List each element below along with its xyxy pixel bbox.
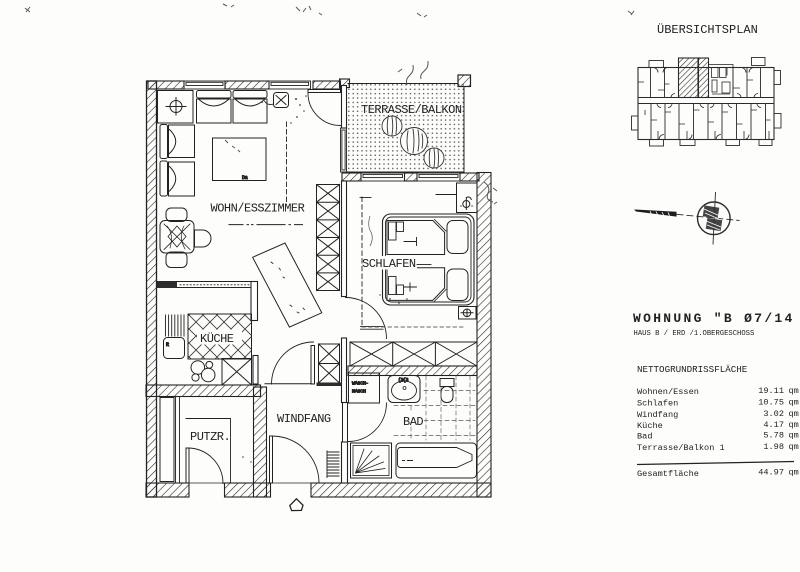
- svg-text:TERRASSE/BALKON: TERRASSE/BALKON: [361, 103, 462, 117]
- svg-text:Windfang: Windfang: [637, 410, 678, 420]
- svg-text:HAUS B / ERD /1.OBERGESCHOSS: HAUS B / ERD /1.OBERGESCHOSS: [634, 330, 755, 338]
- svg-text:Bad: Bad: [637, 432, 652, 442]
- svg-text:qm: qm: [789, 442, 799, 452]
- svg-text:Küche: Küche: [637, 421, 663, 431]
- svg-text:WINDFANG: WINDFANG: [277, 412, 331, 426]
- svg-text:qm: qm: [789, 468, 799, 478]
- svg-text:1.98: 1.98: [763, 442, 784, 452]
- svg-text:ÜBERSICHTSPLAN: ÜBERSICHTSPLAN: [657, 23, 758, 37]
- svg-text:WOHNUNG "B Ø7/14: WOHNUNG "B Ø7/14: [633, 311, 795, 326]
- svg-text:Terrasse/Balkon 1: Terrasse/Balkon 1: [637, 443, 725, 453]
- svg-text:10.75: 10.75: [758, 398, 784, 408]
- svg-text:Wohnen/Essen: Wohnen/Essen: [637, 387, 699, 397]
- svg-text:WOHN/ESSZIMMER: WOHN/ESSZIMMER: [211, 202, 305, 216]
- svg-text:3.02: 3.02: [763, 409, 784, 419]
- svg-text:R: R: [166, 342, 169, 348]
- svg-text:Gesamtfläche: Gesamtfläche: [637, 469, 699, 479]
- svg-text:4.17: 4.17: [763, 420, 784, 430]
- svg-text:(3(3: (3(3: [398, 378, 409, 384]
- svg-text:44.97: 44.97: [758, 468, 784, 478]
- svg-text:qm: qm: [789, 398, 799, 408]
- svg-text:19.11: 19.11: [758, 386, 784, 396]
- svg-text:qm: qm: [789, 409, 799, 419]
- svg-text:BAD: BAD: [403, 415, 423, 429]
- svg-text:5.78: 5.78: [763, 431, 784, 441]
- svg-text:qm: qm: [789, 420, 799, 430]
- svg-text:WASCH-: WASCH-: [352, 381, 369, 387]
- svg-text:PUTZR.: PUTZR.: [190, 430, 230, 444]
- svg-text:Da: Da: [242, 175, 248, 181]
- svg-text:KÜCHE: KÜCHE: [200, 332, 234, 346]
- svg-text:qm: qm: [789, 386, 799, 396]
- svg-text:NETTOGRUNDRISSFLÄCHE: NETTOGRUNDRISSFLÄCHE: [637, 364, 748, 375]
- svg-text:qm: qm: [789, 431, 799, 441]
- svg-text:SCHLAFEN: SCHLAFEN: [362, 257, 416, 271]
- svg-text:Schlafen: Schlafen: [637, 399, 678, 409]
- svg-text:MASCH: MASCH: [352, 389, 366, 395]
